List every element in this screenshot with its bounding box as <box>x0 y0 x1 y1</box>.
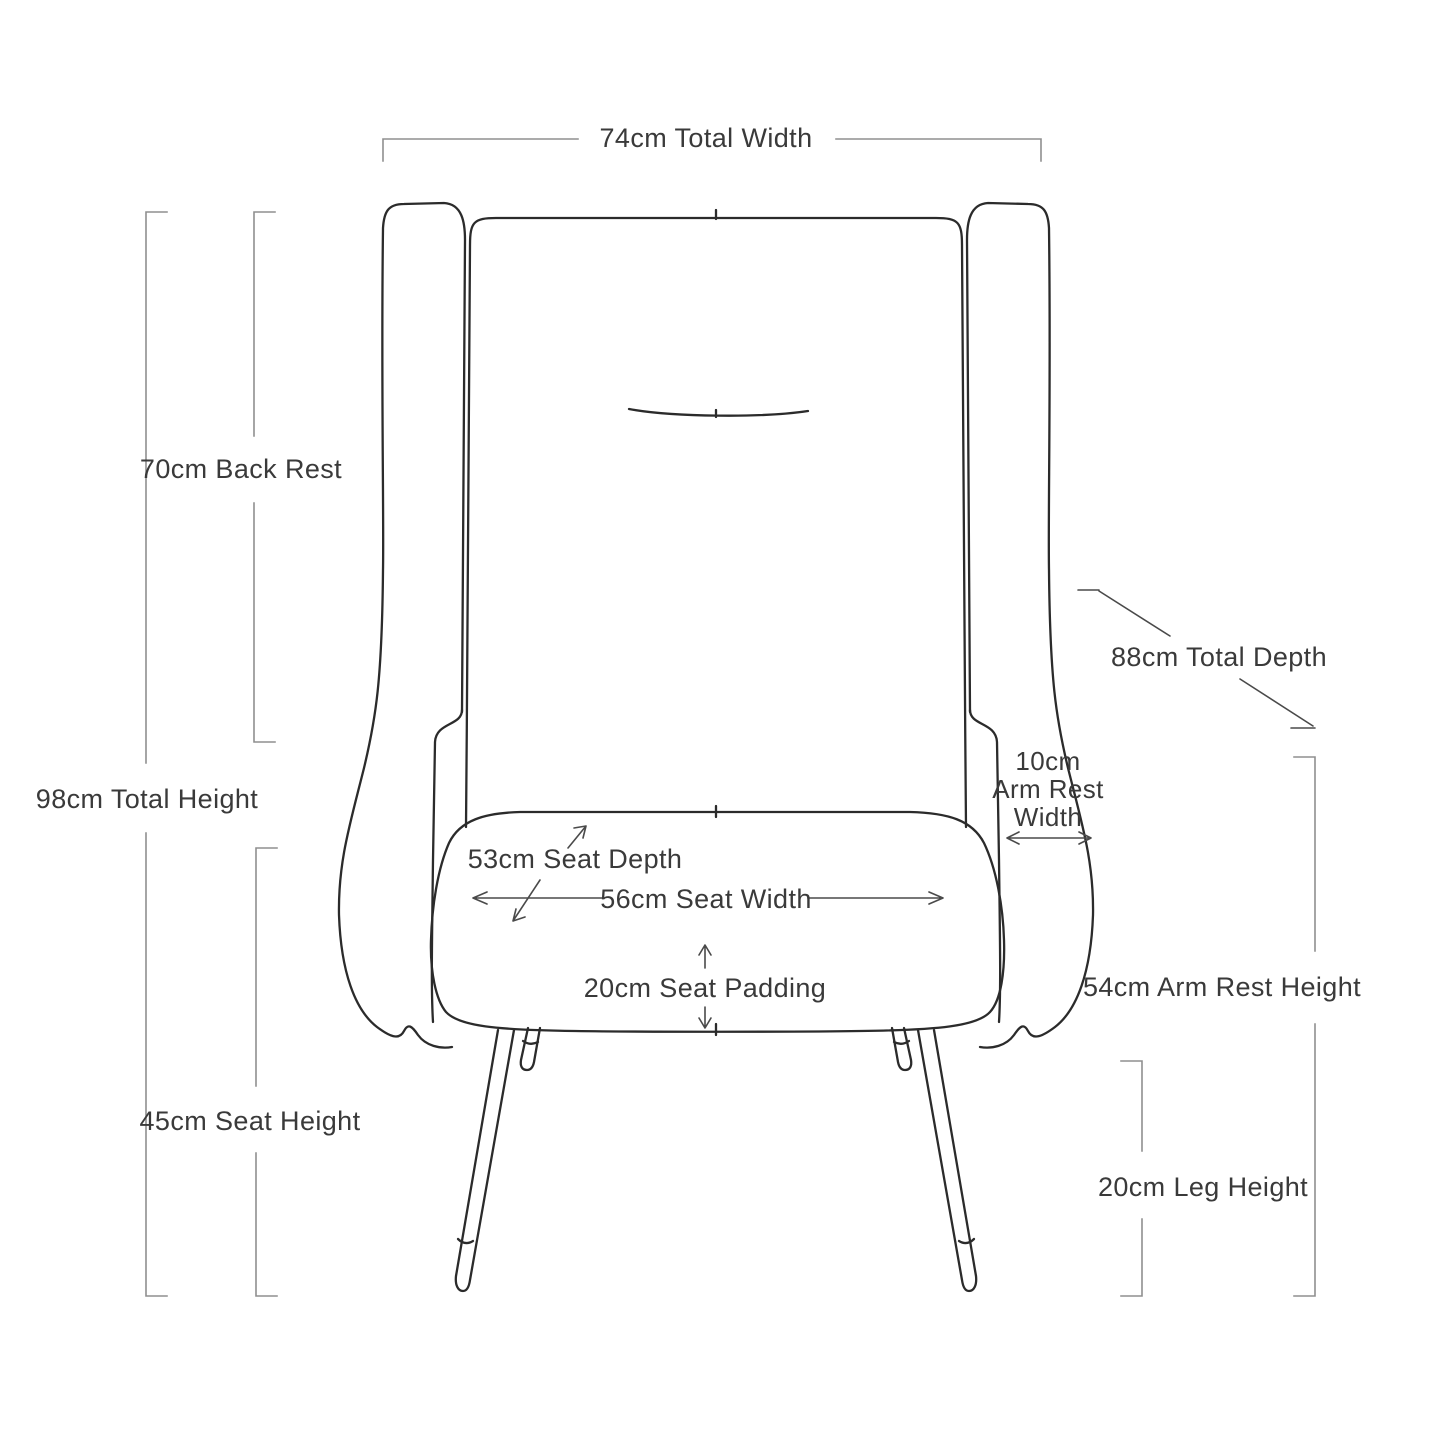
label-arm-rest-width-line2: Arm Rest <box>992 774 1104 804</box>
label-seat-depth: 53cm Seat Depth <box>468 844 683 874</box>
armchair-dimension-diagram: 74cm Total Width 70cm Back Rest 98cm Tot… <box>0 0 1445 1445</box>
front-left-leg-ferrule <box>458 1239 473 1243</box>
right-wing-panel <box>967 203 1093 1048</box>
front-right-leg-ferrule <box>959 1239 974 1243</box>
label-seat-padding: 20cm Seat Padding <box>584 973 826 1003</box>
label-arm-rest-height: 54cm Arm Rest Height <box>1083 972 1361 1002</box>
backrest-outline <box>466 218 966 827</box>
backrest-seam <box>629 409 808 416</box>
rear-right-leg <box>892 1028 911 1070</box>
label-total-depth: 88cm Total Depth <box>1111 642 1327 672</box>
arm-rest-height-bracket <box>1294 757 1315 1296</box>
label-arm-rest-width-line1: 10cm <box>1015 746 1080 776</box>
diagram-svg: 74cm Total Width 70cm Back Rest 98cm Tot… <box>0 0 1445 1445</box>
arm-rest-width-arrow <box>1007 832 1091 844</box>
right-arm-inner-edge <box>970 710 1000 1022</box>
left-wing-panel <box>339 203 465 1048</box>
dimension-labels: 74cm Total Width 70cm Back Rest 98cm Tot… <box>36 123 1361 1202</box>
label-total-width: 74cm Total Width <box>600 123 813 153</box>
label-back-rest: 70cm Back Rest <box>140 454 342 484</box>
seat-height-bracket <box>256 848 277 1296</box>
left-arm-inner-edge <box>432 710 462 1022</box>
label-leg-height: 20cm Leg Height <box>1098 1172 1308 1202</box>
rear-left-leg-cap <box>523 1041 538 1044</box>
label-seat-width: 56cm Seat Width <box>600 884 812 914</box>
label-arm-rest-width-line3: Width <box>1014 802 1082 832</box>
front-left-leg <box>456 1030 514 1291</box>
label-seat-height: 45cm Seat Height <box>139 1106 360 1136</box>
label-total-height: 98cm Total Height <box>36 784 259 814</box>
rear-left-leg <box>521 1028 540 1070</box>
chair-drawing <box>339 203 1093 1291</box>
rear-right-leg-cap <box>894 1041 909 1044</box>
front-right-leg <box>918 1030 976 1291</box>
